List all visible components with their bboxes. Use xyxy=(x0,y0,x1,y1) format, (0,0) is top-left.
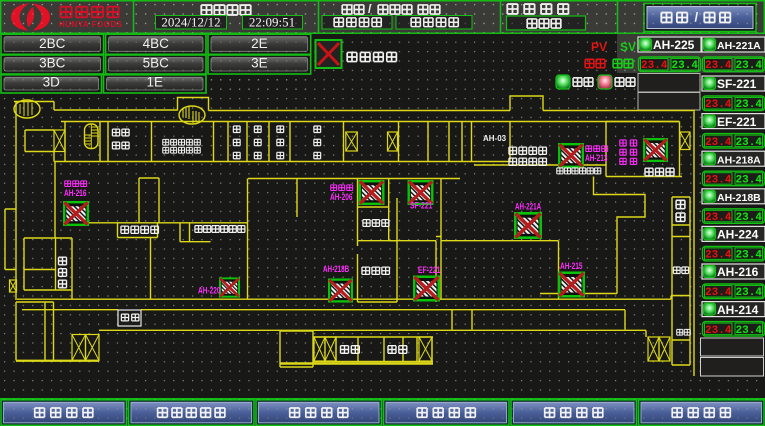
svg-text:AH-206: AH-206 xyxy=(330,192,353,202)
svg-text:23.4: 23.4 xyxy=(736,212,763,224)
svg-text:23.4: 23.4 xyxy=(705,287,732,299)
svg-text:SV: SV xyxy=(620,40,636,54)
svg-text:AH-216: AH-216 xyxy=(64,188,87,198)
svg-text:AH-221A: AH-221A xyxy=(515,201,542,211)
svg-text:23.4: 23.4 xyxy=(736,250,763,262)
svg-text:23.4: 23.4 xyxy=(705,174,732,186)
svg-text:23.4: 23.4 xyxy=(736,99,763,111)
svg-text:23.4: 23.4 xyxy=(736,60,763,72)
svg-text:EF-221: EF-221 xyxy=(418,265,441,275)
svg-text:23.4: 23.4 xyxy=(672,60,699,72)
svg-text:23.4: 23.4 xyxy=(705,212,732,224)
svg-text:AH-218B: AH-218B xyxy=(717,192,761,204)
svg-text:23.4: 23.4 xyxy=(736,325,763,337)
svg-text:AH-218B: AH-218B xyxy=(323,264,349,274)
svg-text:AH-221A: AH-221A xyxy=(717,40,761,52)
svg-text:AH-224: AH-224 xyxy=(717,228,759,242)
svg-text:AH-214: AH-214 xyxy=(717,303,759,317)
svg-text:23.4: 23.4 xyxy=(705,325,732,337)
svg-text:AH-215: AH-215 xyxy=(560,261,583,271)
svg-text:23.4: 23.4 xyxy=(705,60,732,72)
svg-text:23.4: 23.4 xyxy=(641,60,668,72)
svg-text:23.4: 23.4 xyxy=(736,137,763,149)
svg-text:SF-221: SF-221 xyxy=(717,77,757,91)
svg-text:AH-03: AH-03 xyxy=(483,134,507,143)
svg-text:EF-221: EF-221 xyxy=(717,115,757,129)
svg-text:23.4: 23.4 xyxy=(705,99,732,111)
svg-text:AH-213: AH-213 xyxy=(585,153,608,163)
svg-text:SF-221: SF-221 xyxy=(410,200,433,210)
svg-text:PV: PV xyxy=(591,40,607,54)
svg-text:23.4: 23.4 xyxy=(705,137,732,149)
svg-text:23.4: 23.4 xyxy=(736,287,763,299)
svg-text:23.4: 23.4 xyxy=(736,174,763,186)
svg-text:AH-225: AH-225 xyxy=(653,38,695,52)
svg-text:AH-216: AH-216 xyxy=(717,265,759,279)
svg-text:AH-220: AH-220 xyxy=(198,285,221,295)
svg-text:AH-218A: AH-218A xyxy=(717,154,761,166)
svg-text:23.4: 23.4 xyxy=(705,250,732,262)
